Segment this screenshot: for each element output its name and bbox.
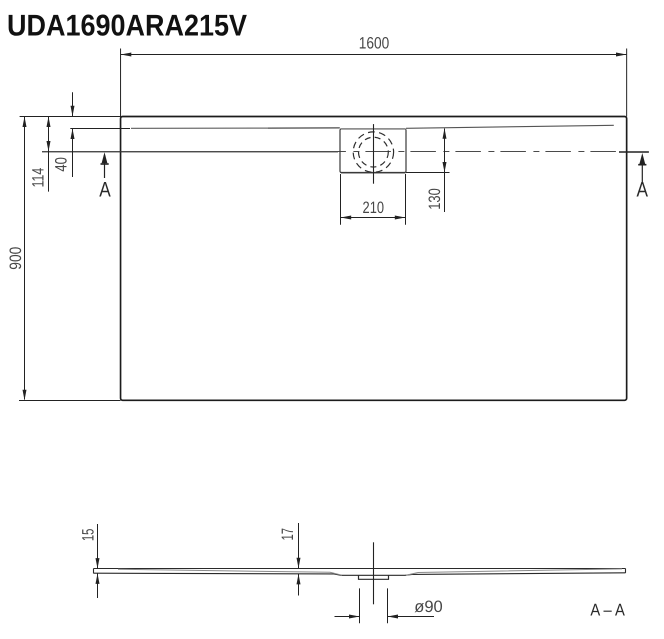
svg-text:A: A — [99, 179, 111, 202]
svg-text:210: 210 — [363, 199, 385, 217]
svg-text:114: 114 — [29, 168, 47, 188]
svg-text:1600: 1600 — [359, 35, 390, 53]
svg-text:A – A: A – A — [590, 601, 625, 620]
svg-text:130: 130 — [426, 188, 444, 210]
svg-text:17: 17 — [279, 528, 297, 541]
svg-text:900: 900 — [7, 247, 25, 270]
svg-text:A: A — [637, 179, 649, 202]
svg-text:UDA1690ARA215V: UDA1690ARA215V — [7, 10, 247, 43]
svg-text:15: 15 — [80, 529, 98, 542]
svg-text:40: 40 — [53, 157, 71, 172]
svg-text:ø90: ø90 — [414, 598, 443, 616]
